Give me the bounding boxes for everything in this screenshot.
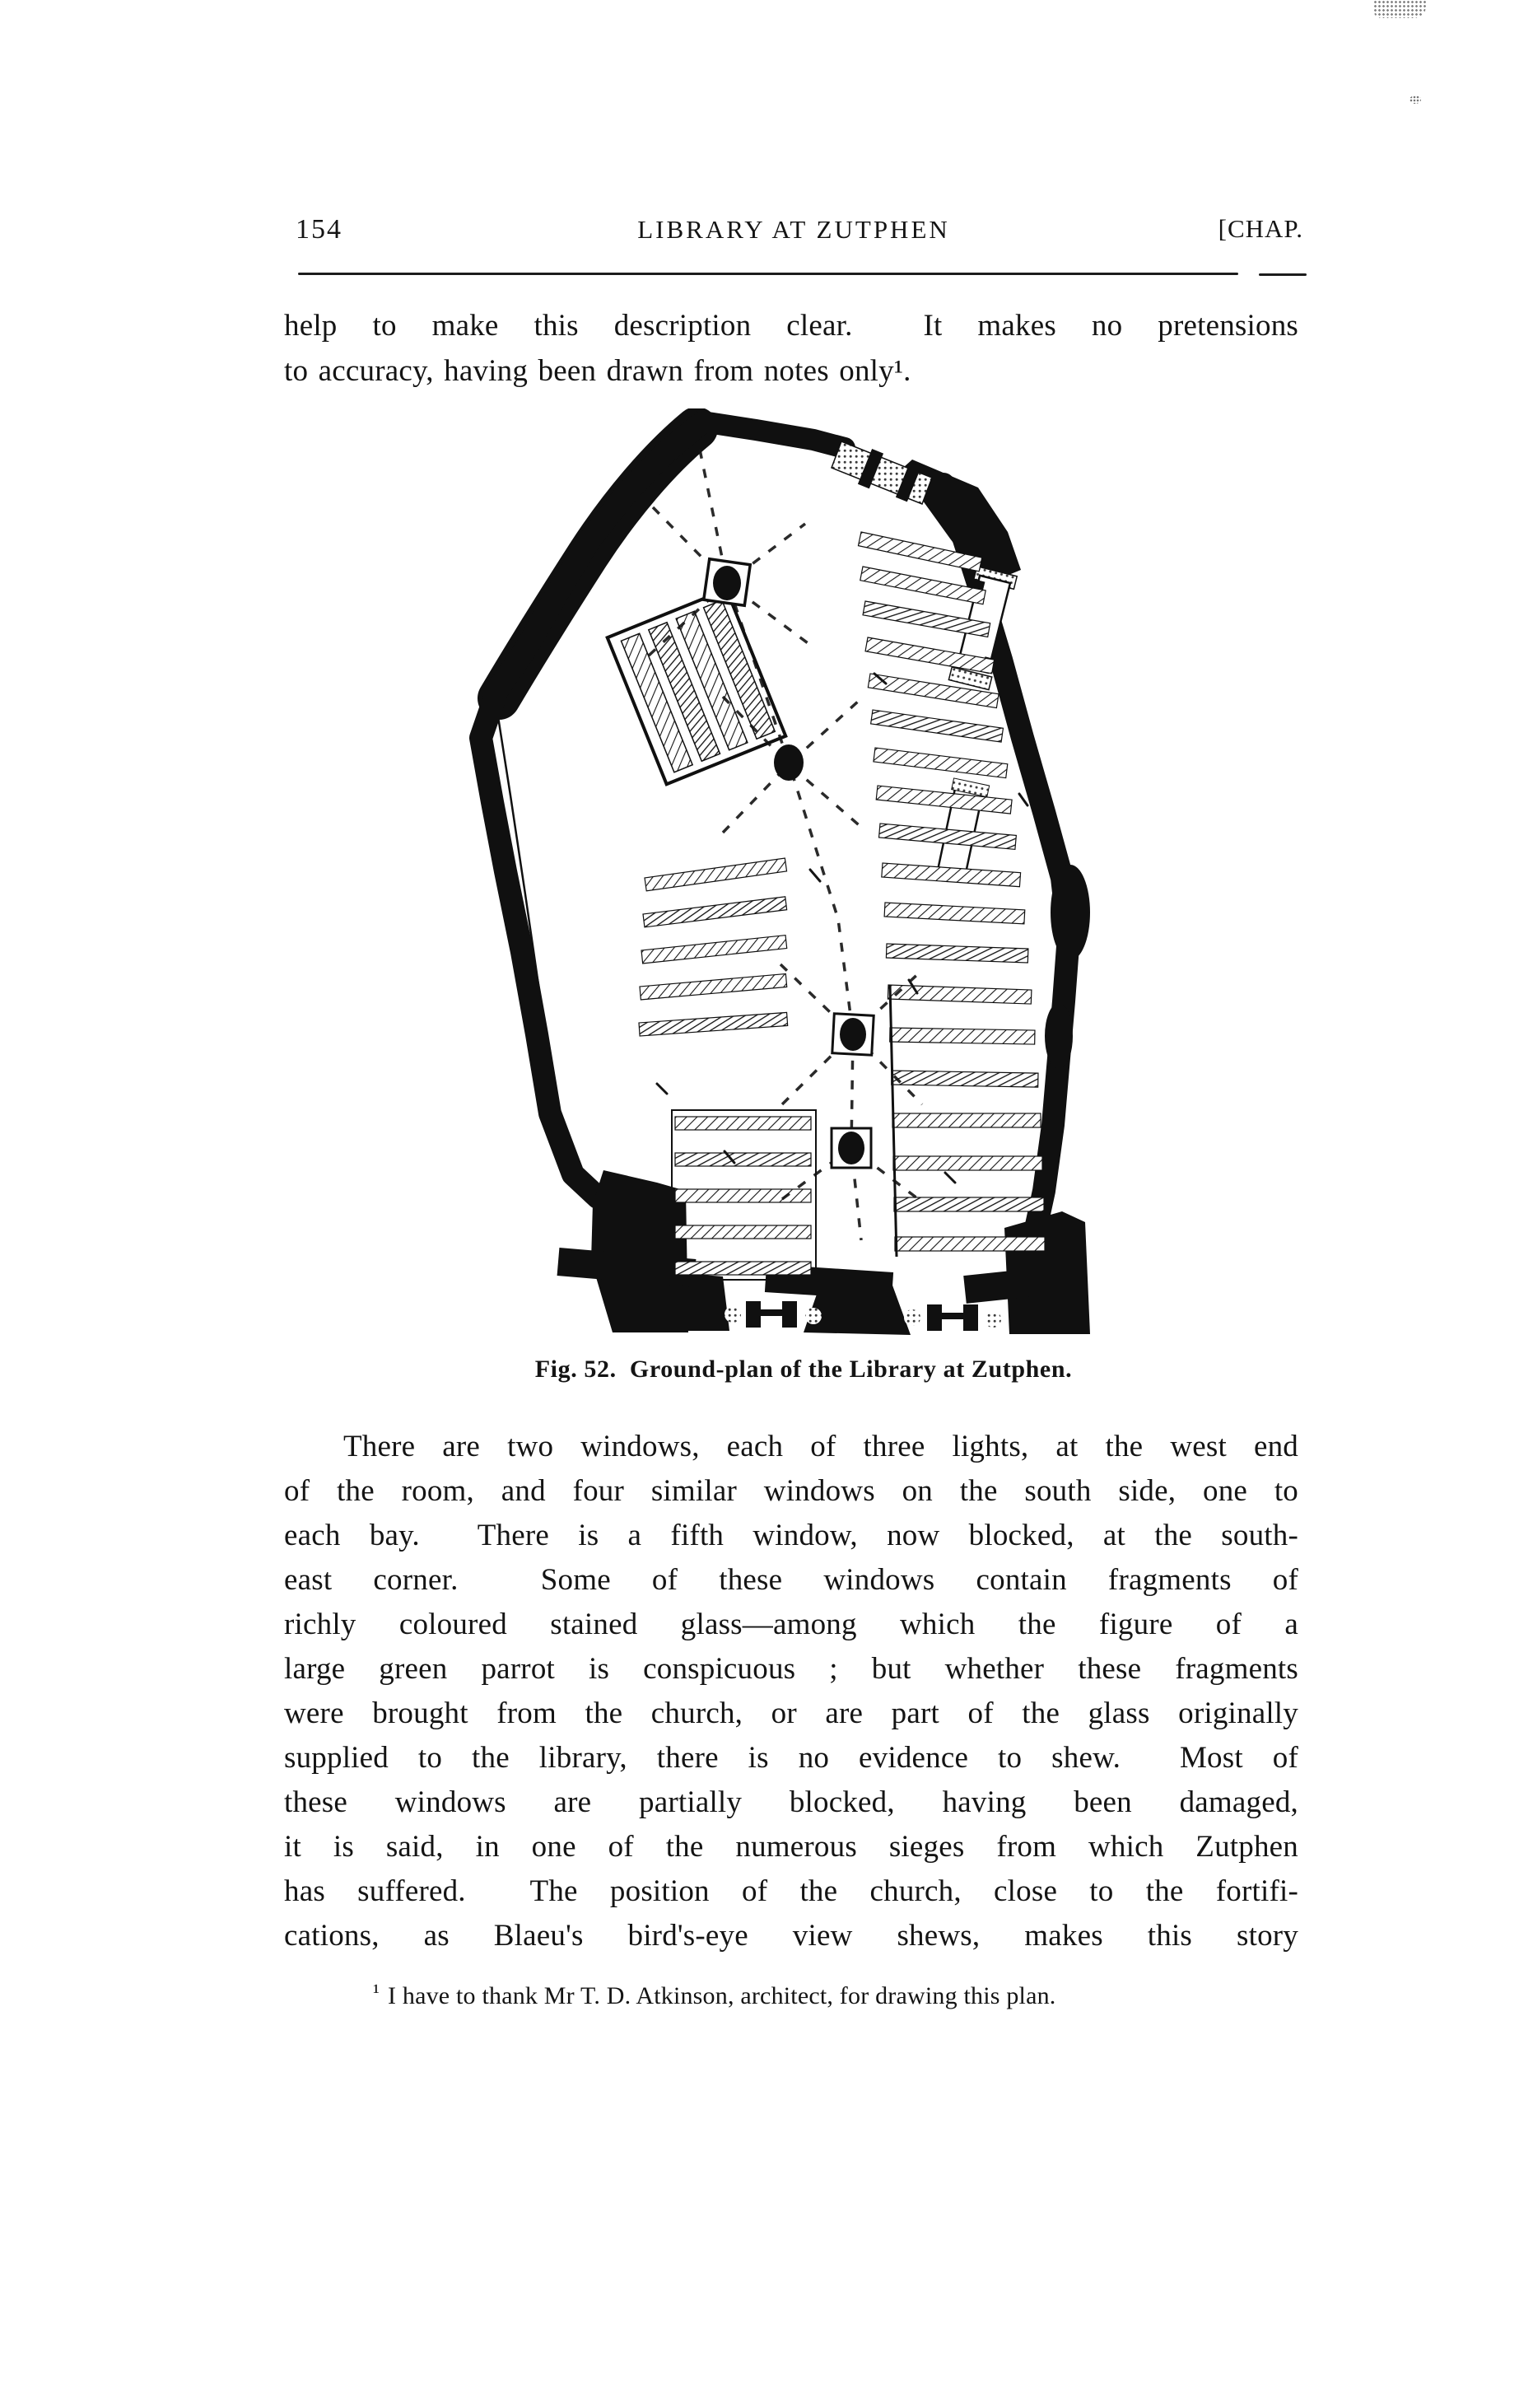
scan-artifact-smudge	[1373, 0, 1426, 18]
text-line: has suffered. The position of the church…	[284, 1869, 1298, 1914]
text-line: There are two windows, each of three lig…	[284, 1425, 1298, 1469]
scan-artifact-speck	[1410, 96, 1421, 104]
running-title: LIBRARY AT ZUTPHEN	[284, 215, 1303, 245]
text-line: help to make this description clear. It …	[284, 303, 1298, 348]
chapter-marker: [CHAP.	[1218, 214, 1303, 244]
ground-plan-figure	[451, 408, 1103, 1336]
footnote: ¹I have to thank Mr T. D. Atkinson, arch…	[284, 1980, 1298, 2010]
text-line: cations, as Blaeu's bird's-eye view shew…	[284, 1914, 1298, 1958]
text-line: large green parrot is conspicuous ; but …	[284, 1647, 1298, 1692]
south-bookcase-rows	[858, 532, 1045, 1257]
header-rule-end	[1259, 273, 1307, 276]
text-line: it is said, in one of the numerous siege…	[284, 1825, 1298, 1869]
text-line: east corner. Some of these windows conta…	[284, 1558, 1298, 1603]
west-stall-block	[608, 590, 786, 784]
text-line: were brought from the church, or are par…	[284, 1692, 1298, 1736]
text-line: these windows are partially blocked, hav…	[284, 1780, 1298, 1825]
west-bookcase-rows-upper	[639, 858, 788, 1036]
footnote-marker: ¹	[373, 1980, 388, 2004]
text-line: richly coloured stained glass—among whic…	[284, 1603, 1298, 1647]
book-page: 154 LIBRARY AT ZUTPHEN [CHAP. help to ma…	[0, 0, 1519, 2408]
header-rule	[298, 273, 1238, 275]
north-window-band	[832, 441, 932, 504]
text-line: of the room, and four similar windows on…	[284, 1469, 1298, 1514]
text-line: each bay. There is a fifth window, now b…	[284, 1514, 1298, 1558]
page-header: 154 LIBRARY AT ZUTPHEN [CHAP.	[284, 212, 1303, 245]
text-line: to accuracy, having been drawn from note…	[284, 348, 1298, 394]
figure-caption: Fig. 52. Ground-plan of the Library at Z…	[296, 1356, 1311, 1384]
intro-paragraph: help to make this description clear. It …	[284, 303, 1298, 394]
text-line: supplied to the library, there is no evi…	[284, 1736, 1298, 1780]
floor-plan-drawing	[451, 408, 1103, 1336]
body-paragraph: There are two windows, each of three lig…	[284, 1425, 1298, 1958]
west-bookcase-rows-lower	[672, 1110, 816, 1280]
footnote-text: I have to thank Mr T. D. Atkinson, archi…	[388, 1982, 1056, 2009]
